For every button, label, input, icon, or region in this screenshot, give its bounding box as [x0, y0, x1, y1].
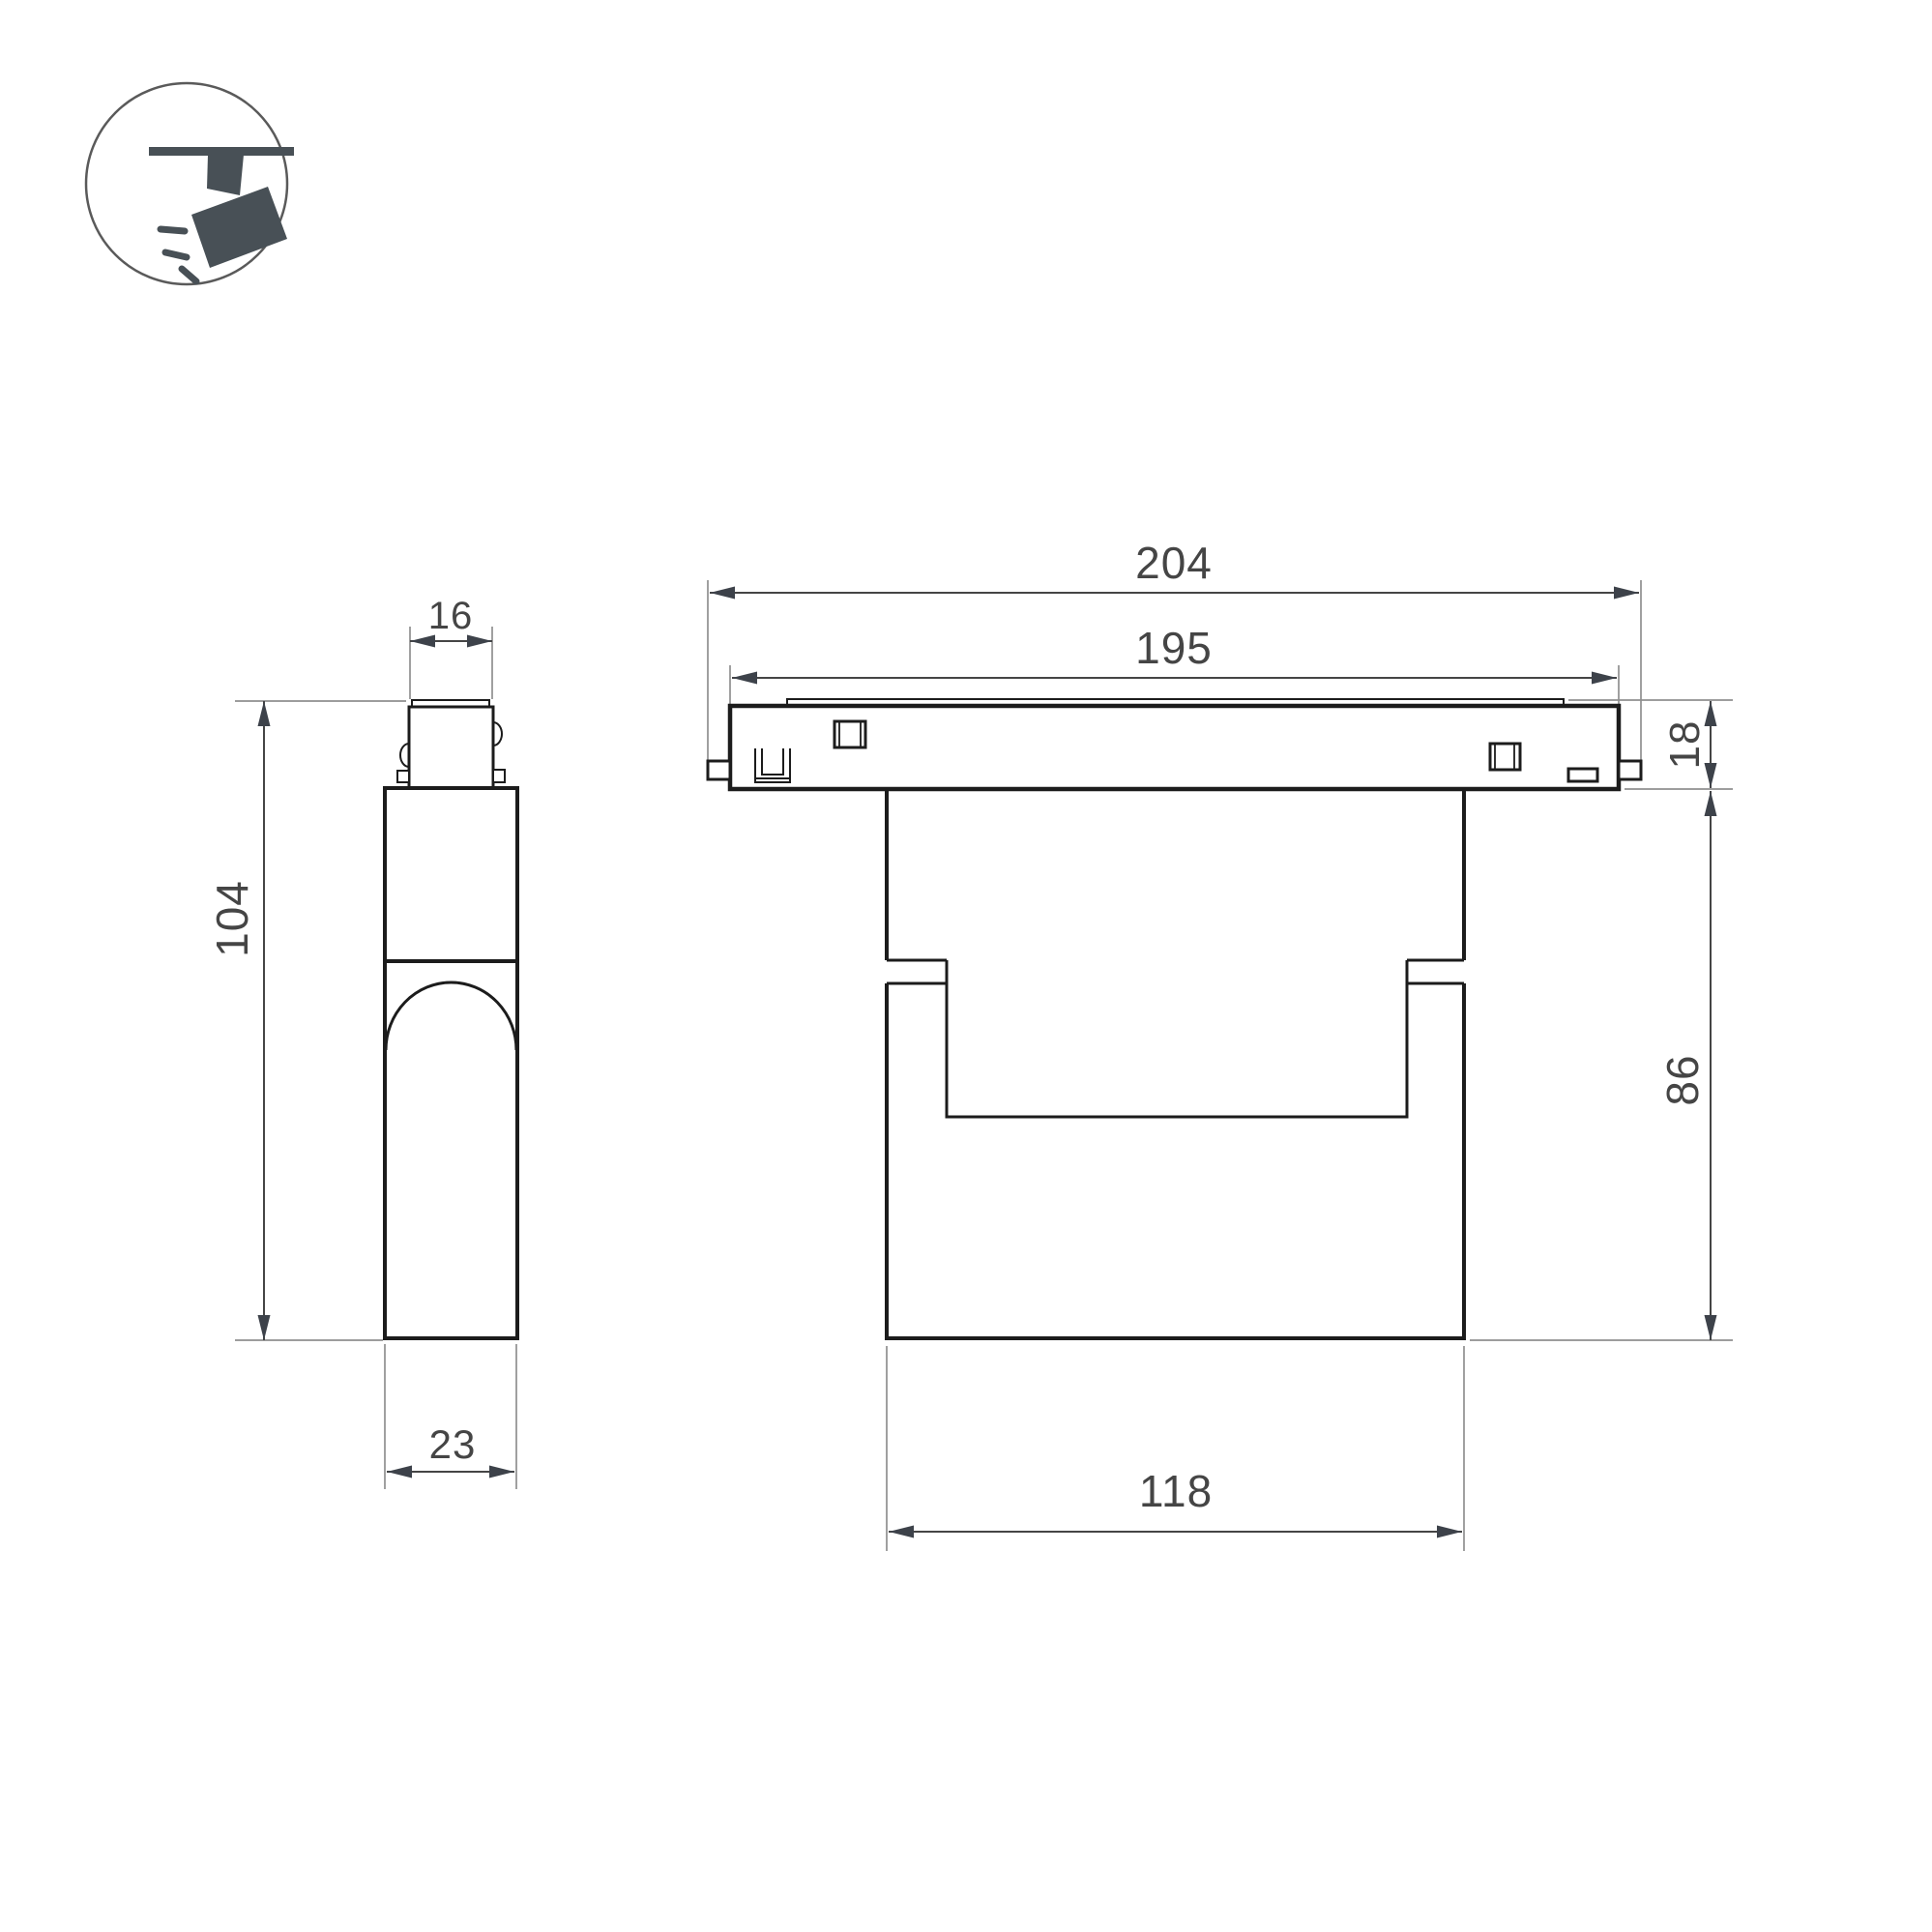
dim-18: 18 — [1661, 701, 1717, 788]
front-lamp-body — [887, 789, 1464, 1338]
dim-104: 104 — [207, 701, 271, 1340]
dim-16: 16 — [410, 595, 492, 648]
dim-label-body-depth: 23 — [429, 1421, 477, 1467]
front-view — [708, 699, 1641, 1338]
dim-label-body-height: 86 — [1657, 1054, 1708, 1105]
side-lamp-body — [385, 788, 517, 1338]
dim-195: 195 — [732, 623, 1617, 685]
dim-86: 86 — [1657, 791, 1717, 1340]
dim-label-track-length-body: 195 — [1135, 623, 1213, 673]
dim-label-overall-height: 104 — [207, 880, 257, 957]
dim-label-adapter-width: 16 — [428, 595, 474, 637]
side-right-foot — [493, 770, 505, 782]
icon-track-bar — [149, 147, 294, 156]
track-spotlight-icon — [86, 83, 294, 284]
front-right-notch — [1407, 960, 1464, 983]
side-track-adapter — [409, 707, 493, 788]
dim-label-track-height: 18 — [1661, 720, 1709, 770]
side-view — [385, 700, 517, 1338]
rail-left-tab — [708, 761, 730, 779]
front-left-notch — [887, 960, 947, 983]
dim-204: 204 — [710, 538, 1639, 600]
dim-label-track-length-overall: 204 — [1135, 538, 1213, 588]
front-body-outline — [887, 789, 1464, 1338]
rail-right-tab — [1619, 761, 1641, 779]
technical-drawing-canvas: 16 104 204 195 18 — [0, 0, 1932, 1932]
dimension-drawing: 16 104 204 195 18 — [0, 0, 1932, 1932]
side-left-foot — [397, 771, 409, 782]
dim-label-body-width: 118 — [1139, 1466, 1213, 1516]
front-inner-recess — [947, 960, 1407, 1117]
dim-118: 118 — [889, 1466, 1462, 1538]
dim-23: 23 — [387, 1421, 514, 1478]
icon-stem — [207, 155, 244, 195]
